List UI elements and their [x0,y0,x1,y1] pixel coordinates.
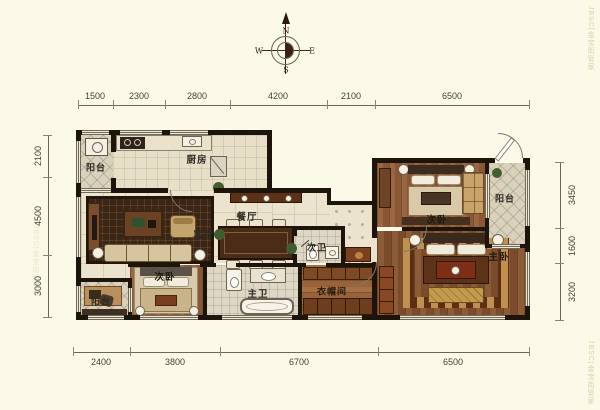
window [120,130,162,135]
dim-top-4: 4200 [268,91,288,101]
dim-tick [555,320,564,321]
compass-needle-icon [282,12,290,24]
side-table [92,247,104,259]
armchair [170,215,196,238]
dim-left-1: 2100 [33,146,43,166]
dim-tick [43,255,52,256]
dim-tick [78,100,79,109]
wardrobe-right [462,172,484,214]
dim-tick [113,100,114,109]
plant-icon [214,229,225,240]
window [485,174,490,218]
dim-line-top [78,105,529,106]
wall [267,188,330,193]
bath2-sink-icon [325,246,339,259]
wall [267,130,272,192]
toilet-icon [226,269,242,291]
watermark-bottom-right: JBSC|金宝街管家 [585,340,595,405]
dim-tick [555,228,564,229]
bedroom-right-cabinet [379,168,391,208]
room-label-closet: 衣帽间 [317,285,347,298]
master-wardrobe [379,266,394,314]
dim-tick [327,100,328,109]
bed-headboard [423,233,489,243]
room-label-bedroom2-right: 次卧 [426,212,447,226]
plant-icon [492,168,502,178]
dim-tick [230,100,231,109]
window [525,170,530,226]
bed-blanket [140,288,192,312]
side-table [194,249,206,261]
wall [203,263,207,317]
room-label-dining: 餐厅 [236,209,257,223]
dim-top-1: 1500 [85,91,105,101]
dim-top-2: 2300 [129,91,149,101]
wall [111,133,116,152]
dim-tick [555,263,564,264]
dim-tick [375,100,376,109]
vanity-sink [250,268,286,283]
door-gap [372,238,377,262]
dim-top-3: 2800 [187,91,207,101]
pillow [411,175,435,185]
pillow [437,175,461,185]
compass-label-e: E [309,47,315,56]
dim-tick [73,347,74,356]
room-label-living: 客厅 [193,227,214,241]
pillow [426,244,455,255]
wall [341,226,345,265]
dim-left-2: 4500 [33,206,43,226]
dim-line-left [48,135,49,317]
window [76,197,81,257]
room-label-balcony-right: 阳台 [495,192,515,205]
room-label-balcony-bl: 阳台 [91,295,111,308]
room-label-master-bedroom: 主卧 [488,249,509,263]
compass-inner-circle [277,42,294,59]
room-label-balcony-tl: 阳台 [86,161,106,174]
dim-top-5: 2100 [341,91,361,101]
dim-top-6: 6500 [442,91,462,101]
window [82,130,109,135]
dim-bottom-2: 3800 [165,357,185,367]
wardrobe-row [303,298,373,315]
floor-plan-canvas: JBSC|金宝街管家 JBSC|金宝街管家 JBSC|金宝街管家 N S W E… [0,0,600,410]
room-label-master-bath: 主卫 [247,286,268,300]
window [88,315,124,320]
dim-right-1: 3450 [567,185,577,205]
wall [327,201,375,205]
dim-tick [529,347,530,356]
compass-label-w: W [255,47,263,56]
balcony-slider-door [81,188,111,193]
dim-right-2: 1600 [567,236,577,256]
stove-icon [120,137,145,149]
tv-cabinet [88,203,100,251]
sofa [104,244,192,262]
wall [236,263,306,267]
wall [298,263,302,317]
dim-tick [43,177,52,178]
bed-bench [428,287,484,303]
pillow [457,244,486,255]
dim-tick [220,347,221,356]
wall [111,188,168,193]
wall [128,263,180,267]
wall [293,226,297,236]
window [170,130,208,135]
dim-tick [43,135,52,136]
window [400,315,505,320]
compass-label-s: S [283,66,288,75]
room-label-bath2: 次卫 [307,241,327,254]
dim-line-right [560,162,561,320]
hall-cabinet [345,247,371,262]
fridge-icon [210,156,227,177]
buffet-cabinet [230,192,302,203]
compass: N S W E [250,8,320,78]
balcony-slider-door [128,288,133,312]
bed-blanket [423,256,489,284]
dim-bottom-1: 2400 [91,357,111,367]
coffee-table [123,210,163,238]
wall [293,226,345,230]
wall [214,188,272,193]
dim-tick [555,162,564,163]
window [140,315,198,320]
dining-table [218,226,294,260]
window [308,315,362,320]
wall [326,263,375,267]
washer-icon [85,138,108,156]
window [76,141,81,183]
dim-tick [529,100,530,109]
dim-tick [130,347,131,356]
room-label-kitchen: 厨房 [186,152,207,166]
dim-line-bottom [73,352,529,353]
bathtub-icon [240,298,294,315]
window [525,252,530,306]
compass-label-n: N [283,27,290,36]
bed-headboard [408,165,464,174]
dim-tick [165,100,166,109]
sink-icon [182,136,202,147]
dim-right-3: 3200 [567,282,577,302]
wall [76,278,130,282]
compass-half-fill [286,43,294,58]
watermark-top-right: JBSC|金宝街管家 [585,6,595,71]
dim-bottom-3: 6700 [289,357,309,367]
window [222,315,292,320]
window [76,286,81,312]
dim-left-3: 3000 [33,276,43,296]
plant-icon [286,243,297,254]
dim-tick [378,347,379,356]
room-label-bedroom2-left: 次卧 [154,269,175,283]
dim-tick [43,317,52,318]
dim-bottom-4: 6500 [443,357,463,367]
